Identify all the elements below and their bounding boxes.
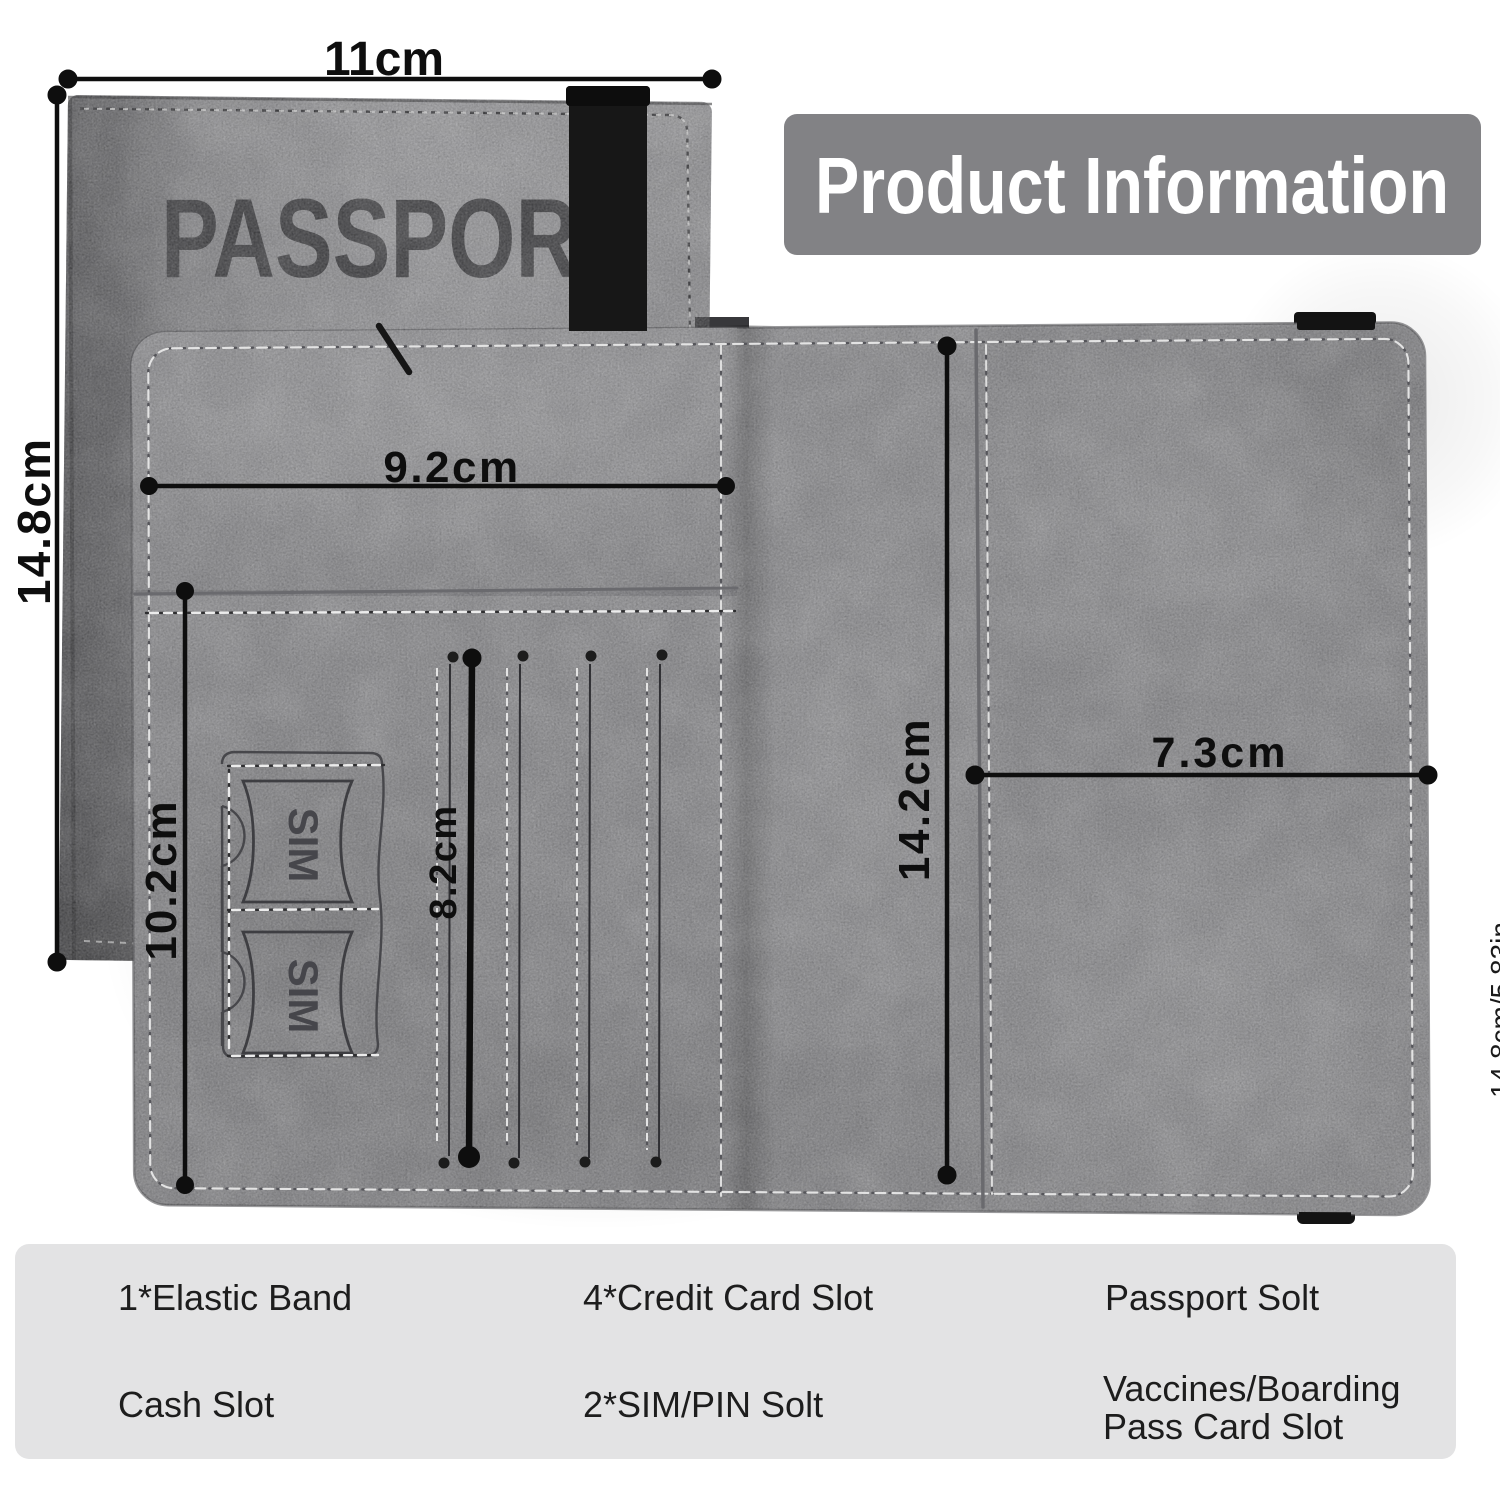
svg-text:Product Information: Product Information <box>815 141 1449 230</box>
svg-text:SIM: SIM <box>280 808 327 883</box>
svg-text:8.2cm: 8.2cm <box>423 804 465 919</box>
svg-text:SIM: SIM <box>280 959 327 1034</box>
svg-text:11cm: 11cm <box>324 33 444 86</box>
svg-text:2*SIM/PIN Solt: 2*SIM/PIN Solt <box>583 1384 823 1425</box>
svg-text:Cash Slot: Cash Slot <box>118 1384 274 1425</box>
svg-text:9.2cm: 9.2cm <box>383 443 520 492</box>
svg-text:7.3cm: 7.3cm <box>1152 729 1289 777</box>
svg-text:14.8cm/5.83in: 14.8cm/5.83in <box>1485 922 1500 1098</box>
svg-text:14.8cm: 14.8cm <box>8 437 60 605</box>
svg-text:4*Credit Card Slot: 4*Credit Card Slot <box>583 1277 873 1318</box>
svg-text:Vaccines/Boarding: Vaccines/Boarding <box>1103 1368 1401 1409</box>
svg-text:Pass Card Slot: Pass Card Slot <box>1103 1406 1343 1447</box>
svg-text:10.2cm: 10.2cm <box>137 799 186 960</box>
svg-text:1*Elastic Band: 1*Elastic Band <box>118 1277 352 1318</box>
svg-text:Passport Solt: Passport Solt <box>1105 1277 1319 1318</box>
svg-text:14.2cm: 14.2cm <box>890 717 939 881</box>
